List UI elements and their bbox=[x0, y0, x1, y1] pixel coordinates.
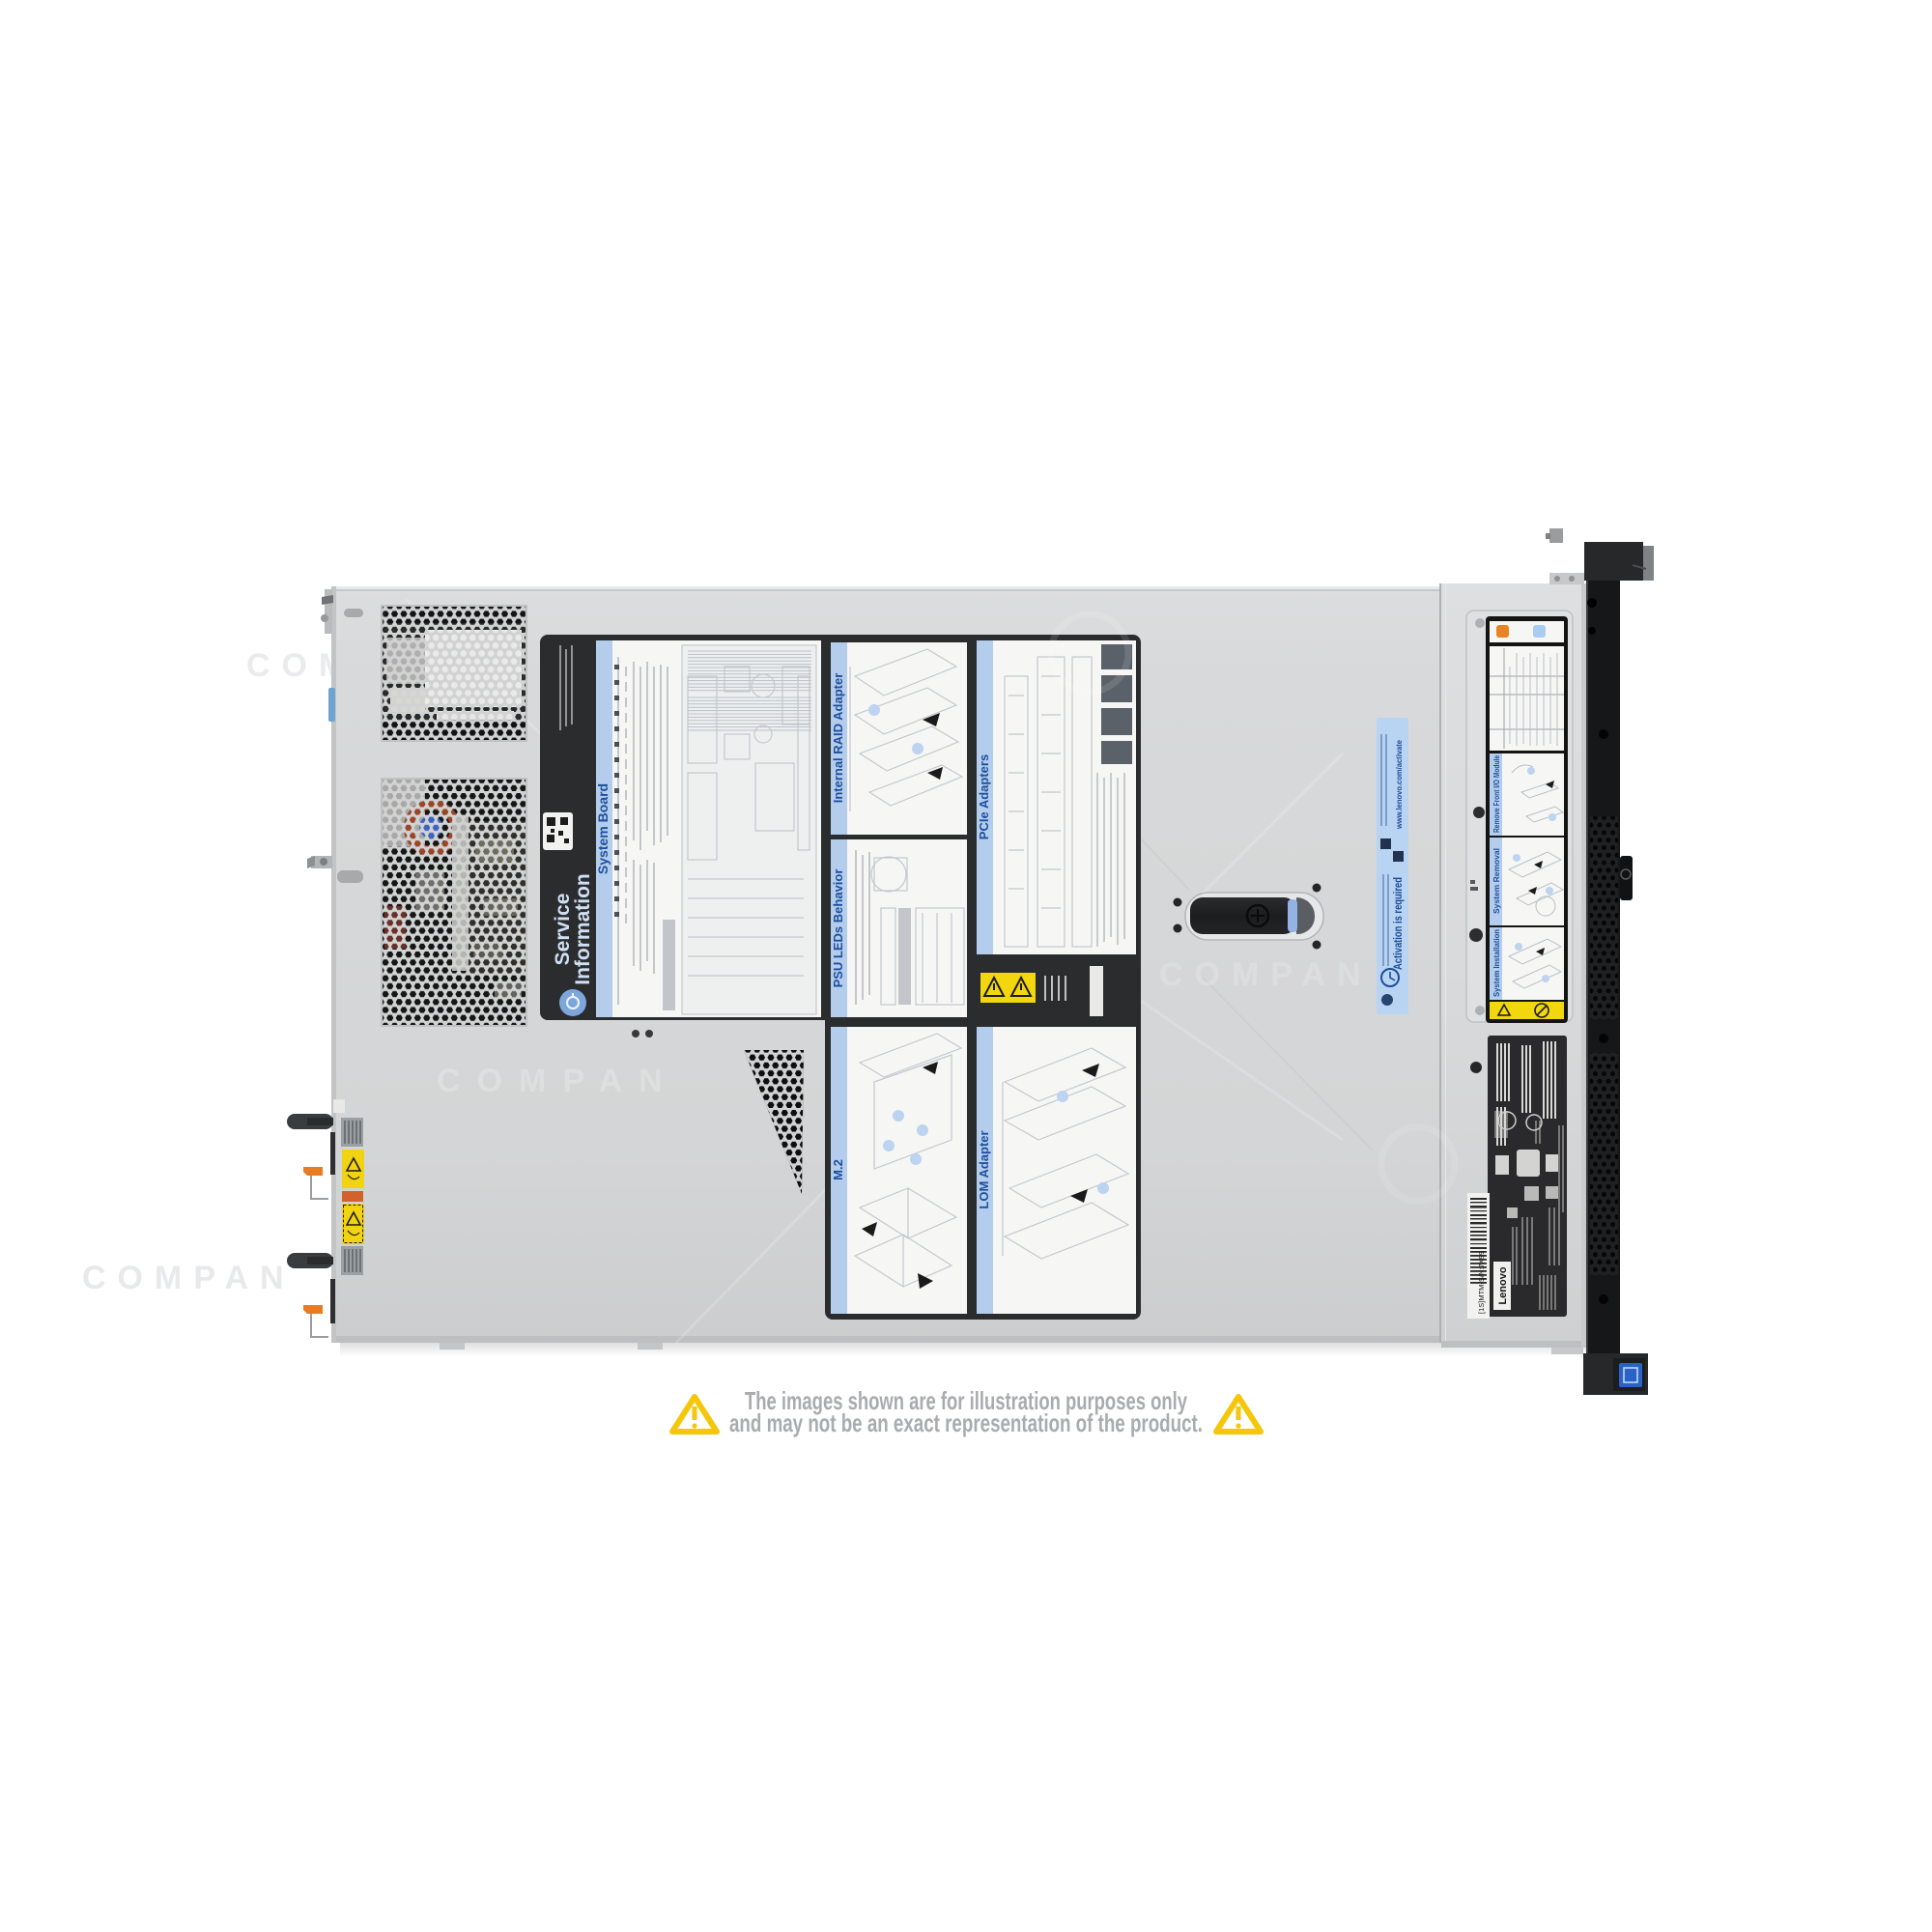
svg-text:[1S]MTM-S/N:7X99: [1S]MTM-S/N:7X99 bbox=[1477, 1251, 1486, 1314]
svg-text:www.lenovo.com/activate: www.lenovo.com/activate bbox=[1394, 740, 1404, 830]
svg-text:COMPAN: COMPAN bbox=[82, 1260, 296, 1296]
svg-text:System Board: System Board bbox=[595, 783, 611, 874]
svg-text:System Installation: System Installation bbox=[1492, 929, 1501, 997]
svg-text:Service: Service bbox=[552, 894, 574, 966]
svg-text:System Removal: System Removal bbox=[1492, 848, 1501, 914]
svg-text:PSU LEDs Behavior: PSU LEDs Behavior bbox=[831, 869, 845, 988]
svg-text:Remove Front I/O Module: Remove Front I/O Module bbox=[1492, 755, 1501, 833]
svg-text:PCIe Adapters: PCIe Adapters bbox=[977, 754, 991, 839]
svg-text:LOM Adapter: LOM Adapter bbox=[977, 1130, 991, 1208]
svg-text:COMPAN: COMPAN bbox=[1159, 956, 1373, 993]
svg-text:COMPAN: COMPAN bbox=[437, 1063, 679, 1099]
svg-text:and may not be an exact repres: and may not be an exact representation o… bbox=[729, 1408, 1203, 1437]
svg-text:Activation is required: Activation is required bbox=[1391, 877, 1405, 970]
svg-text:Information: Information bbox=[572, 873, 594, 985]
svg-text:Lenovo: Lenovo bbox=[1497, 1266, 1509, 1304]
svg-text:Internal RAID Adapter: Internal RAID Adapter bbox=[831, 673, 845, 804]
svg-text:M.2: M.2 bbox=[831, 1159, 845, 1180]
